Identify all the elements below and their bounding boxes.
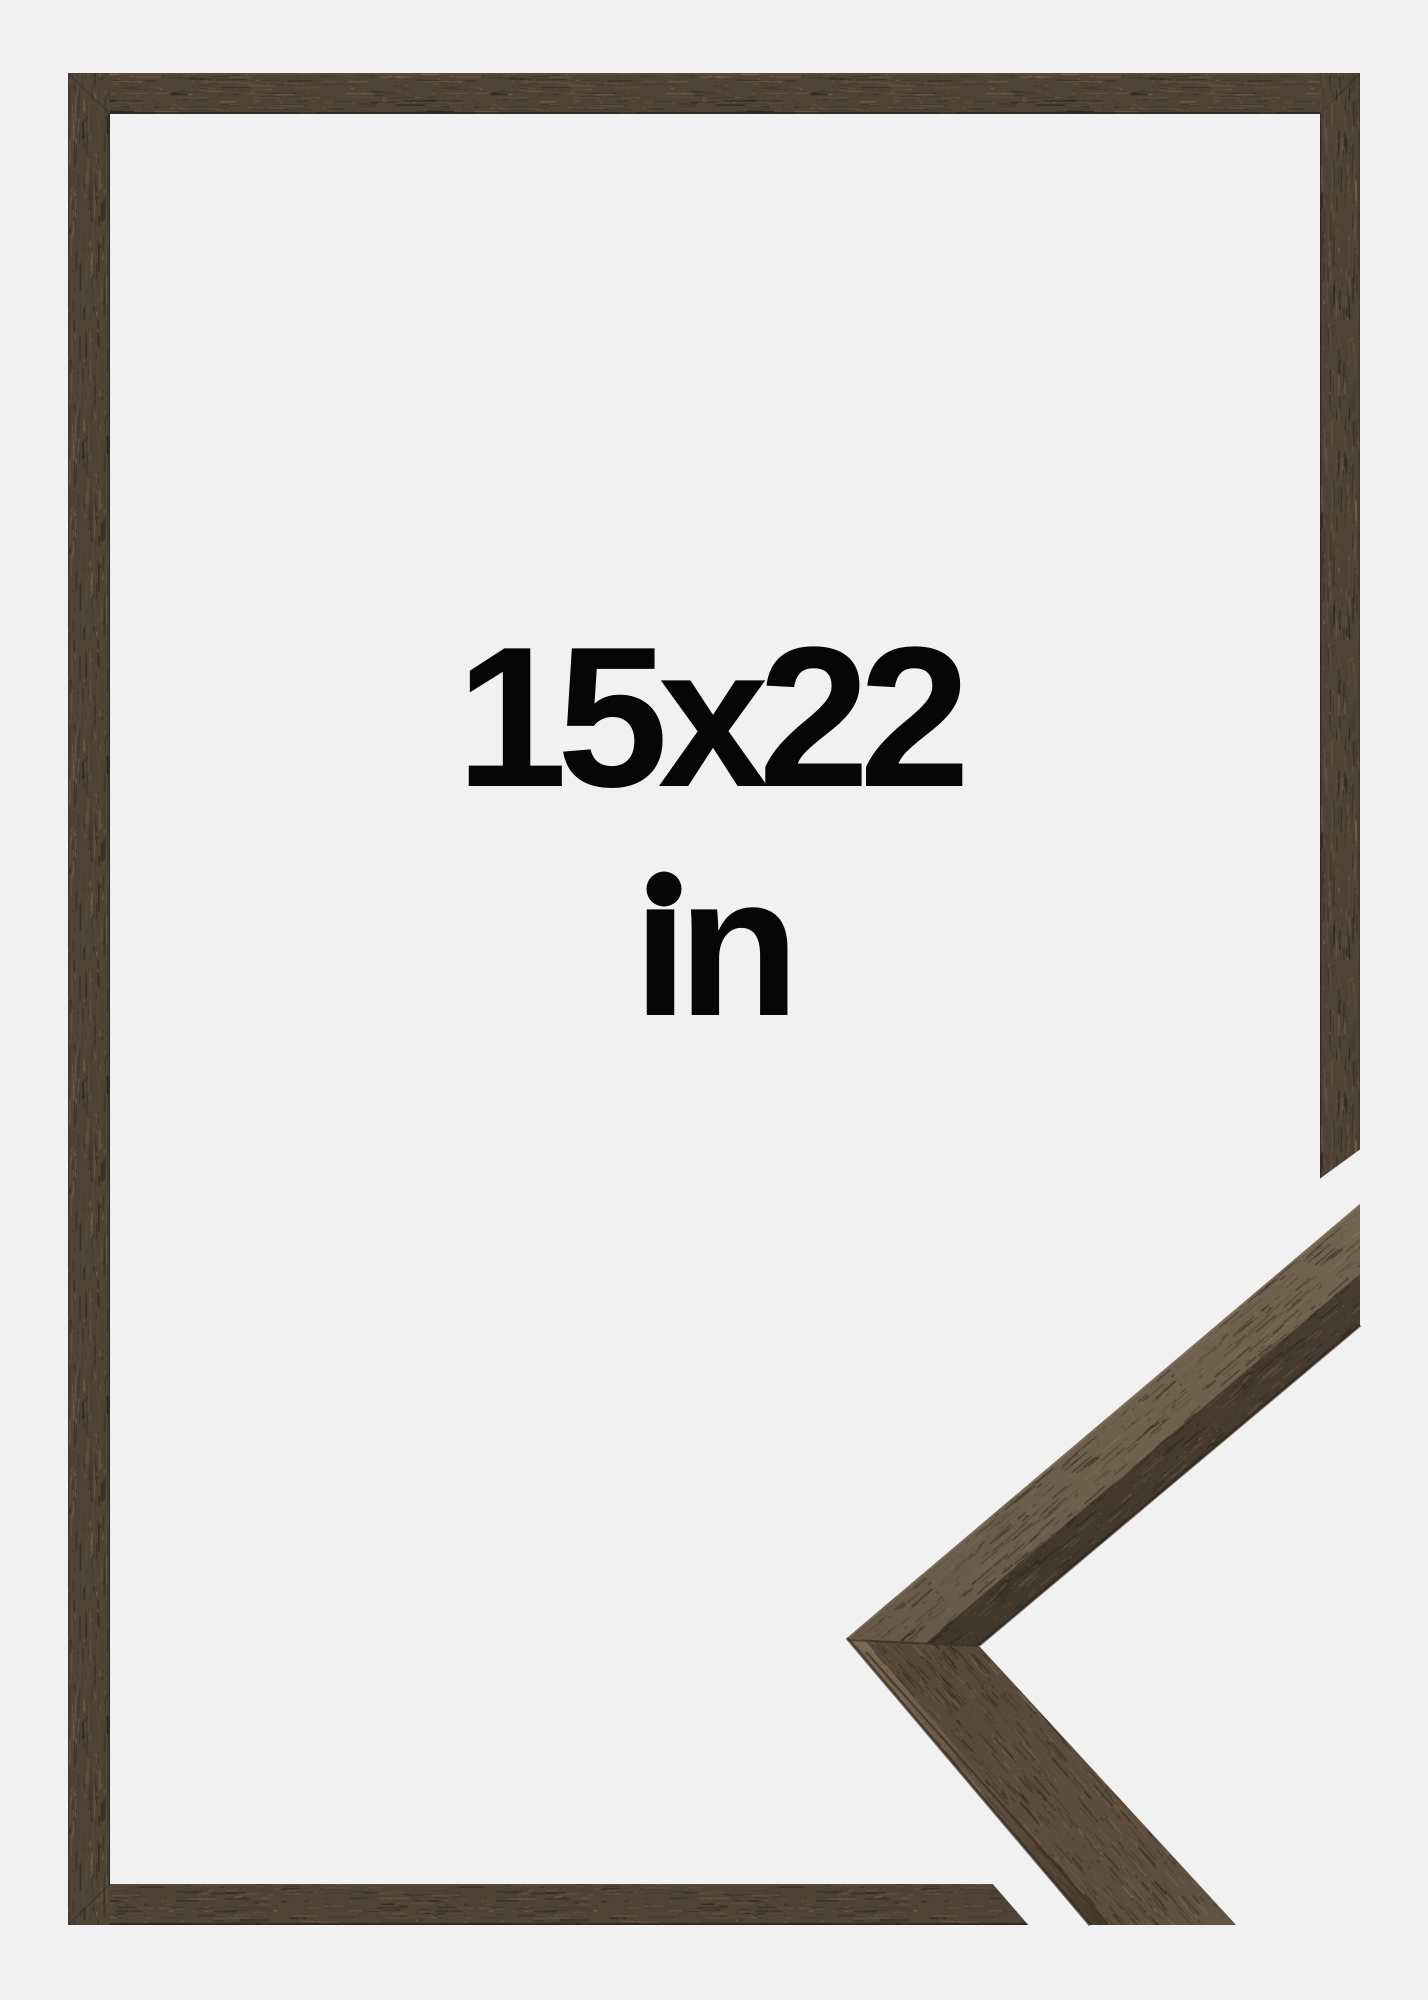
svg-text:15x22: 15x22	[456, 606, 963, 829]
svg-text:ın: ın	[633, 835, 790, 1058]
